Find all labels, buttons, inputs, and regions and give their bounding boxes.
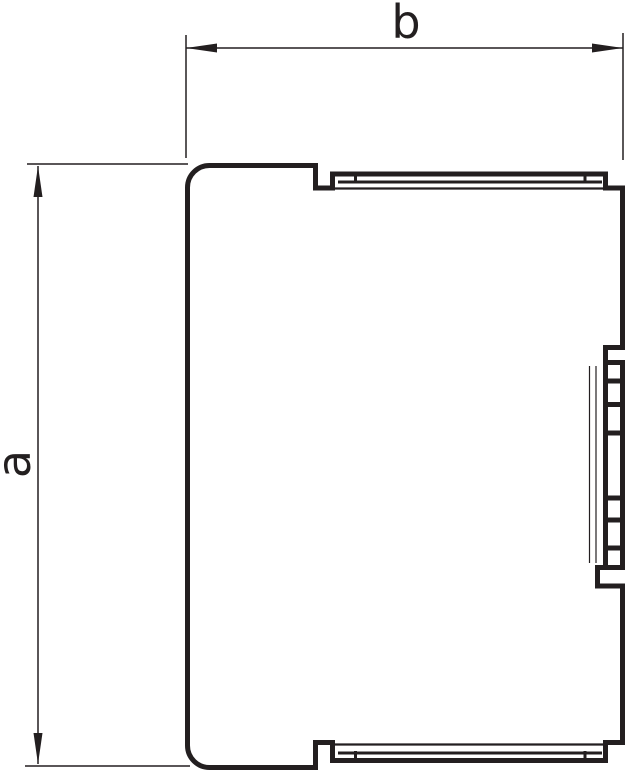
dimension-b-arrow-left [186,44,217,53]
cover-top [334,175,604,189]
dimension-b: b [186,0,623,160]
dimension-a-arrow-top [34,166,43,197]
profile-technical-drawing: b a [0,0,629,771]
dimension-b-arrow-right [592,44,623,53]
latch-rail-rungs [606,381,623,548]
latch-rail-outline [606,363,623,568]
drawing-canvas: b a [0,0,629,771]
profile-body [188,165,623,767]
profile-outline [188,165,623,767]
dimension-a: a [0,164,190,766]
cover-bottom [334,745,604,760]
dimension-b-label: b [391,0,420,49]
dimension-a-arrow-bottom [34,733,43,764]
dimension-a-label: a [0,450,41,478]
